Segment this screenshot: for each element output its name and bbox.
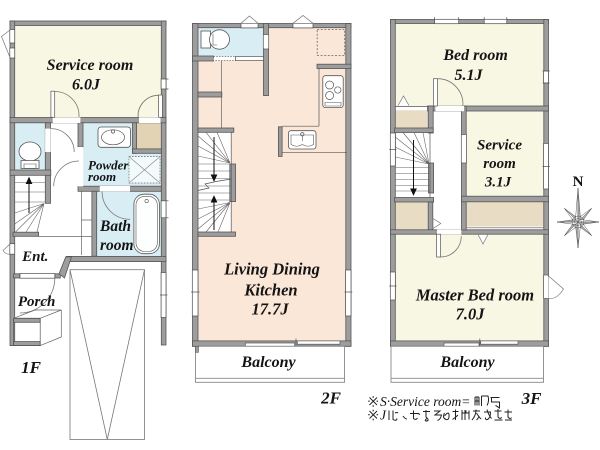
svg-text:17.7J: 17.7J (251, 300, 289, 319)
svg-text:Service room: Service room (47, 57, 134, 74)
svg-text:2F: 2F (320, 389, 342, 408)
svg-text:Balcony: Balcony (439, 354, 495, 371)
svg-text:S·Service room=: S·Service room= (380, 394, 470, 409)
svg-text:Service: Service (477, 138, 522, 154)
svg-text:room: room (100, 237, 134, 254)
svg-text:Kitchen: Kitchen (243, 281, 297, 300)
svg-text:N: N (573, 174, 584, 190)
svg-text:5.1J: 5.1J (455, 67, 484, 84)
svg-text:6.0J: 6.0J (72, 77, 101, 94)
svg-text:Master Bed room: Master Bed room (415, 286, 534, 305)
svg-text:3F: 3F (521, 389, 543, 408)
svg-text:Living Dining: Living Dining (223, 260, 320, 279)
svg-text:Bed room: Bed room (442, 47, 507, 64)
svg-text:3.1J: 3.1J (484, 175, 512, 191)
svg-text:Porch: Porch (18, 294, 56, 310)
svg-text:Balcony: Balcony (240, 354, 296, 371)
svg-text:Bath: Bath (99, 218, 131, 235)
svg-text:Ent.: Ent. (21, 249, 48, 265)
svg-text:1F: 1F (21, 358, 42, 377)
svg-text:room: room (88, 169, 116, 184)
svg-text:J: J (380, 408, 387, 423)
svg-text:7.0J: 7.0J (456, 305, 486, 324)
svg-text:room: room (483, 156, 516, 172)
